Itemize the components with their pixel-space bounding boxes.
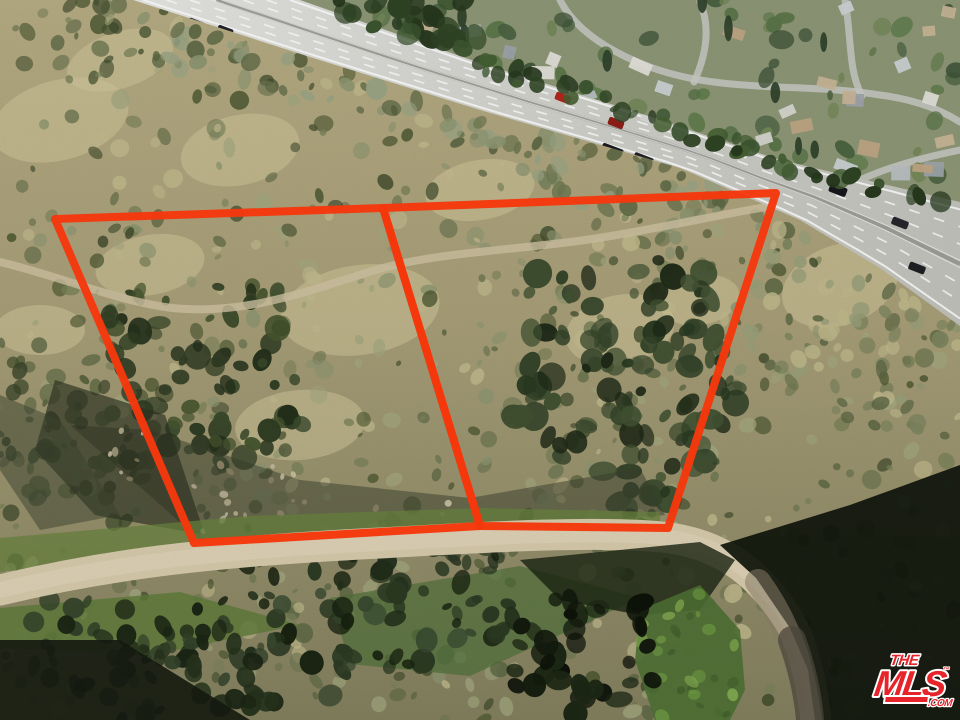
parcel-boundary-right: [383, 193, 776, 528]
parcel-boundary-overlay: [0, 0, 960, 720]
logo-suffix-com: .COM: [927, 698, 954, 709]
mls-logo-text: THE MLS ™ .COM: [871, 652, 956, 709]
logo-trademark: ™: [942, 667, 950, 674]
logo-underline-bar: [884, 696, 929, 703]
mls-watermark-logo: THE MLS ™ .COM: [852, 646, 956, 718]
parcel-boundary-left: [55, 208, 480, 543]
aerial-property-photo: THE MLS ™ .COM: [0, 0, 960, 720]
mls-logo-svg: THE MLS ™ .COM: [852, 646, 956, 718]
